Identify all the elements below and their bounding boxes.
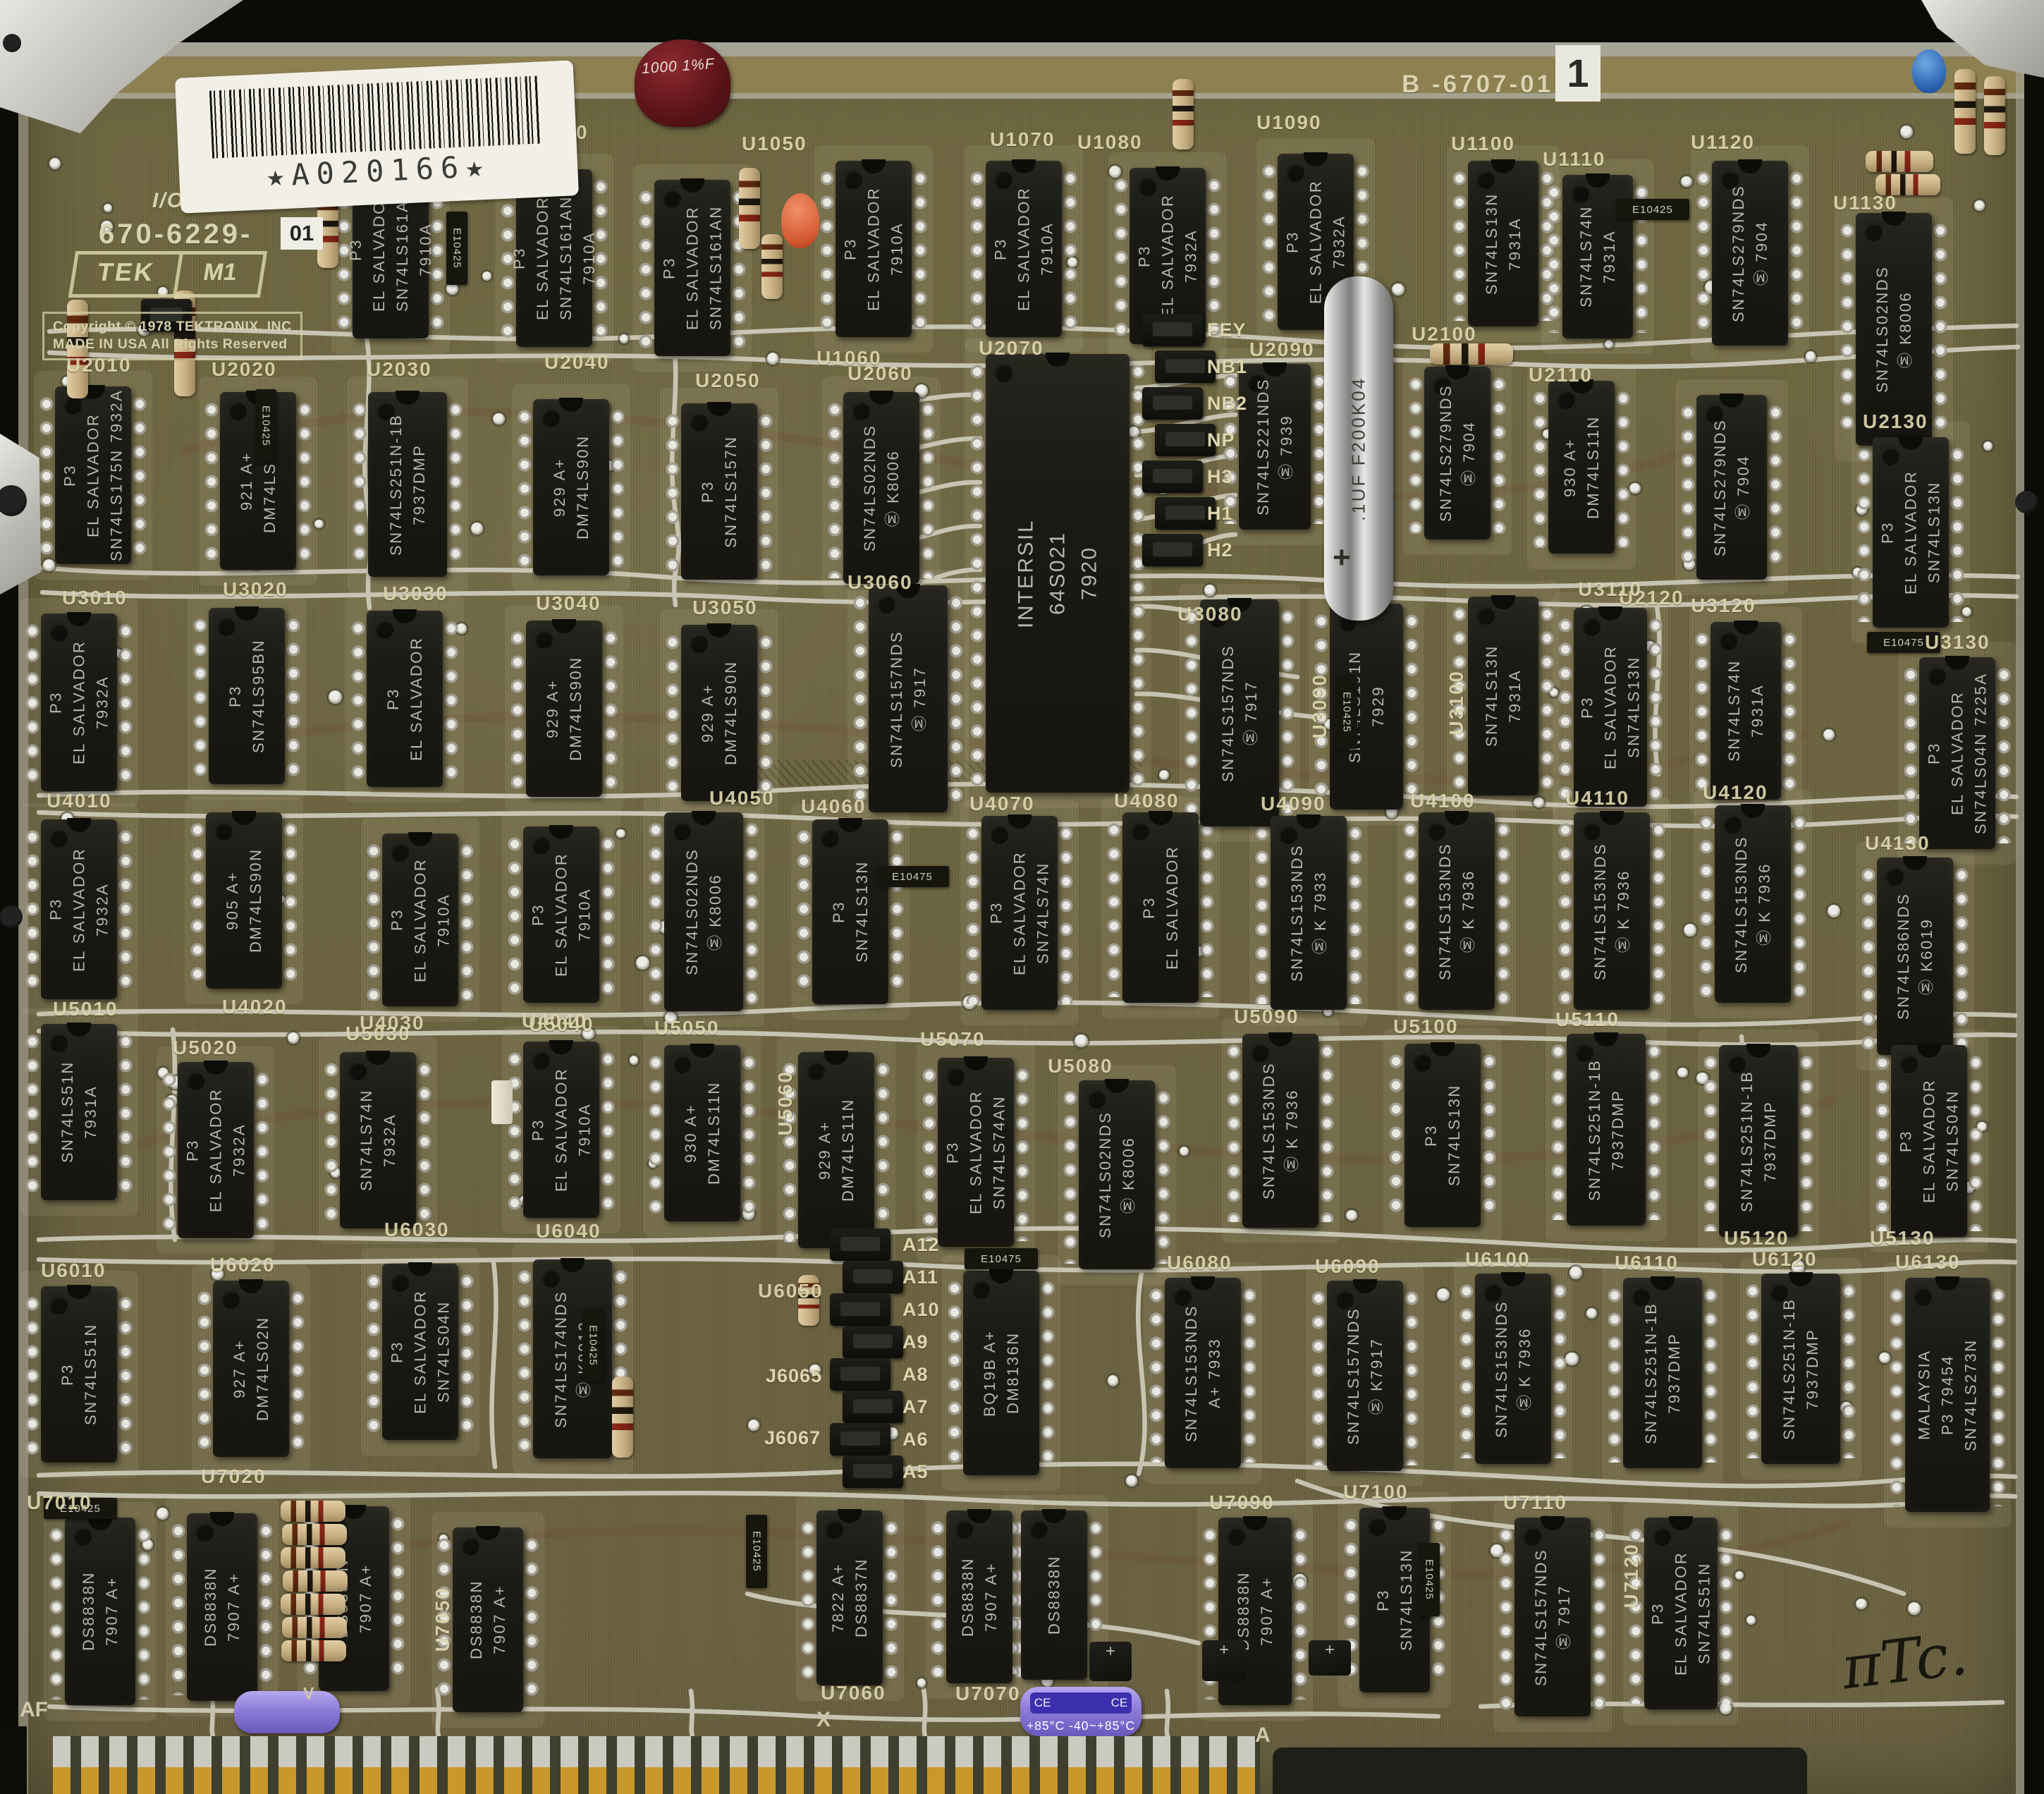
ic-designator: U7090 — [1209, 1491, 1275, 1514]
ic-part-number: SN74LS251N-1B 7937DMP — [1623, 1278, 1702, 1468]
black-square-capacitor: + — [1089, 1642, 1132, 1681]
ic-part-number: P3 EL SALVADOR SN74LS74N — [981, 816, 1058, 1010]
ic-chip: SN74LS74N 7931A — [1711, 622, 1781, 800]
resistor — [739, 168, 760, 249]
edge-fingers-tin — [53, 1736, 1260, 1767]
ic-pins-left — [25, 1292, 40, 1457]
ic-pins-right — [1799, 1051, 1814, 1231]
clip-hole — [3, 34, 21, 52]
ic-part-number: SN74LS86NDS Ⓜ K6019 — [1877, 858, 1953, 1055]
ic-chip: SN74LS153NDS Ⓜ K 7936 — [1715, 805, 1791, 1003]
ic-pins-left — [25, 619, 40, 786]
ic-pins-left — [39, 392, 54, 559]
ic-pins-right — [758, 630, 773, 795]
via-pad — [1681, 176, 1691, 187]
ic-pins-right — [758, 409, 773, 574]
tektronix-logo: TEK M1 — [68, 251, 267, 298]
ic-designator: U4100 — [1410, 790, 1476, 812]
ic-chip: SN74LS221NDS Ⓜ 7939 — [1239, 364, 1311, 530]
connector-designator: J6067 — [764, 1427, 821, 1449]
jumper-block — [1142, 460, 1203, 493]
ic-pins-right — [1933, 219, 1948, 440]
serial-number-label: ★A020166★ — [175, 60, 579, 213]
ic-pins-left — [1875, 1051, 1890, 1231]
jumper-label: NB1 — [1207, 356, 1247, 378]
ic-pins-right — [1015, 1063, 1030, 1241]
resistor — [1173, 79, 1194, 149]
ic-chip: P3 SN74LS13N — [812, 819, 888, 1004]
ic-pins-left — [965, 822, 981, 1004]
ic-designator: U1070 — [990, 128, 1055, 151]
ic-pins-right — [1280, 605, 1295, 821]
via-pad — [1075, 1035, 1087, 1047]
ic-part-number: 929 A+ DM74LS90N — [533, 399, 609, 575]
diode-component: E10425 — [746, 1515, 767, 1588]
ic-designator: U3120 — [1691, 594, 1756, 617]
ic-pins-left — [1861, 863, 1876, 1049]
ic-pins-left — [192, 614, 208, 779]
ic-pins-left — [1856, 443, 1872, 622]
ic-chip: 929 A+ DM74LS90N — [681, 625, 757, 801]
ic-pins-left — [819, 166, 835, 331]
ic-chip: SN74LS251N-1B 7937DMP — [1761, 1274, 1840, 1464]
ic-part-number: SN74LS279NDS Ⓜ 7904 — [1712, 161, 1788, 346]
ic-pins-left — [510, 626, 525, 791]
ic-designator: U7060 — [821, 1682, 886, 1704]
ic-designator: U5050 — [654, 1017, 720, 1039]
ic-pins-left — [1699, 811, 1714, 997]
ic-chip: 927 A+ DM74LS02N — [213, 1281, 289, 1457]
jumper-block — [843, 1261, 903, 1293]
ic-pins-left — [930, 1516, 945, 1678]
ic-chip: P3 EL SALVADOR 7910A — [836, 161, 912, 337]
ic-chip: SN74LS02NDS Ⓜ K8006 — [664, 812, 743, 1011]
ic-pins-right — [1063, 166, 1078, 331]
ic-designator: U5060 — [774, 1070, 797, 1136]
jumper-label: A9 — [902, 1331, 929, 1353]
ic-part-number: P3 EL SALVADOR SN74LS13N — [1574, 608, 1647, 807]
ic-part-number: P3 EL SALVADOR SN74LS04N 7225A — [1919, 657, 1995, 849]
diode-component: E10425 — [255, 389, 276, 463]
polarity-plus: + — [1333, 540, 1351, 575]
ic-chip: SN74LS02NDS Ⓜ K8006 — [1079, 1080, 1155, 1269]
ic-chip: P3 EL SALVADOR SN74LS13N — [1574, 608, 1647, 807]
ic-part-number: 905 A+ DM74LS90N — [206, 812, 282, 989]
ic-part-number: P3 SN74LS13N — [1405, 1044, 1481, 1227]
ic-pins-left — [1388, 1049, 1404, 1221]
edge-connector — [53, 1736, 1260, 1794]
ic-designator: U5080 — [1048, 1055, 1113, 1078]
ic-designator: U7010 — [27, 1491, 92, 1514]
ic-pins-right — [883, 1516, 899, 1680]
ic-chip: DS8838N 7907 A+ — [453, 1527, 523, 1712]
via-pad — [1392, 283, 1405, 296]
ic-designator: U3030 — [383, 582, 448, 605]
jumper-label: A12 — [902, 1234, 940, 1256]
ic-pins-right — [1206, 173, 1222, 338]
connector-designator: J6065 — [766, 1365, 822, 1387]
ic-pins-left — [969, 360, 985, 787]
ic-designator: U5110 — [1555, 1008, 1620, 1031]
page-number-tag: 1 — [1555, 45, 1601, 102]
via-pad — [1108, 1375, 1119, 1386]
ic-pins-right — [1058, 822, 1074, 1004]
ic-pins-right — [889, 825, 905, 999]
resistor — [1866, 151, 1933, 172]
ic-pins-left — [1694, 628, 1710, 794]
ic-part-number: P3 EL SALVADOR SN74LS161AN — [654, 180, 730, 356]
ic-chip: P3 SN74LS157N — [681, 403, 757, 580]
ic-part-number: P3 EL SALVADOR 7910A — [986, 161, 1062, 337]
ic-designator: U5010 — [53, 998, 118, 1020]
resistor — [1984, 76, 2005, 155]
ic-pins-left — [827, 398, 843, 578]
mounting-hole-right — [2015, 491, 2038, 513]
ic-pins-right — [1495, 818, 1511, 1004]
ic-part-number: P3 EL SALVADOR 7932A — [41, 819, 117, 999]
ic-designator: U3100 — [1445, 670, 1468, 736]
ic-part-number: SN74LS221NDS Ⓜ 7939 — [1239, 364, 1311, 530]
ic-pins-right — [1156, 1086, 1171, 1264]
ic-pins-right — [1242, 1283, 1257, 1463]
jumper-block — [1142, 534, 1203, 566]
ic-part-number: SN74LS157NDS Ⓜ 7917 — [1514, 1518, 1591, 1716]
ic-chip: SN74LS74N 7932A — [340, 1052, 416, 1228]
ic-chip: SN74LS251N-1B 7937DMP — [1623, 1278, 1702, 1468]
resistor — [1954, 69, 1976, 154]
ic-pins-left — [1745, 1279, 1761, 1458]
jumper-block — [830, 1423, 891, 1456]
ic-chip: P3 EL SALVADOR SN74LS04N — [1891, 1045, 1967, 1237]
ic-pins-right — [1792, 811, 1807, 997]
jumper-label: FEY — [1207, 319, 1247, 341]
resistor — [761, 234, 783, 299]
ic-chip: P3 EL SALVADOR 7910A — [382, 834, 458, 1006]
ic-pins-right — [1404, 609, 1419, 804]
ic-designator: U2050 — [695, 370, 761, 392]
ic-pins-left — [1840, 219, 1855, 440]
ic-pins-left — [1149, 1283, 1164, 1463]
ic-pins-right — [1552, 1279, 1567, 1458]
ic-designator: U4020 — [222, 996, 288, 1018]
ic-pins-right — [1968, 1051, 1983, 1231]
ic-part-number: P3 SN74LS95BN — [209, 608, 285, 784]
ic-pins-right — [448, 398, 463, 571]
via-pad — [1684, 924, 1696, 936]
purple-capacitor — [234, 1691, 340, 1733]
ic-pins-left — [1558, 614, 1573, 801]
ic-chip: DS8838N 7907 A+ — [946, 1511, 1012, 1683]
ic-chip: SN74LS13N 7931A — [1468, 161, 1538, 327]
via-pad — [482, 271, 491, 281]
tek-logo-text: TEK — [73, 255, 180, 294]
ic-designator: U4060 — [801, 795, 867, 818]
via-pad — [314, 520, 324, 529]
ic-designator: U7070 — [955, 1683, 1021, 1705]
ic-part-number: P3 EL SALVADOR SN74LS74AN — [938, 1058, 1014, 1247]
purple-labeled-capacitor: CE CE +85°C -40~+85°C — [1020, 1687, 1142, 1736]
ic-chip: P3 SN74LS51N — [41, 1286, 117, 1463]
ic-pins-right — [524, 1533, 539, 1707]
ic-pins-right — [1347, 822, 1363, 1004]
orange-drop-capacitor — [781, 193, 819, 248]
ic-chip: P3 EL SALVADOR 7910A — [523, 826, 599, 1003]
resistor — [612, 1377, 633, 1458]
edge-connector-slot — [1273, 1747, 1807, 1794]
ic-pins-right — [132, 392, 147, 559]
ic-designator: U4130 — [1865, 832, 1930, 855]
resistor — [1430, 343, 1513, 365]
resistor — [282, 1524, 347, 1545]
ic-chip: SN74LS157NDS Ⓜ 7917 — [869, 585, 948, 812]
ic-chip: SN74LS86NDS Ⓜ K6019 — [1877, 858, 1953, 1055]
ic-designator: U5040 — [529, 1013, 594, 1036]
via-pad — [493, 413, 504, 425]
ic-pins-left — [25, 1030, 40, 1195]
ic-pins-right — [1996, 663, 2012, 843]
ic-chip: SN74LS13N 7931A — [1468, 597, 1538, 795]
ic-part-number: BQ19B A+ DM8136N — [963, 1271, 1039, 1475]
silver-electrolytic-capacitor: .1UF F200K04 + — [1324, 276, 1393, 621]
ic-chip: 929 A+ DM74LS90N — [533, 399, 609, 575]
diode-component: E10425 — [1336, 676, 1357, 749]
ic-designator: U3110 — [1578, 578, 1642, 601]
ic-chip: SN74LS157NDS Ⓜ 7917 — [1514, 1518, 1591, 1716]
via-pad — [288, 1032, 299, 1044]
barcode — [209, 75, 542, 158]
ic-part-number: 929 A+ DM74LS90N — [681, 625, 757, 801]
ic-chip: 929 A+ DM74LS90N — [526, 621, 602, 797]
ic-pins-right — [258, 1519, 274, 1695]
resistor — [281, 1640, 346, 1661]
via-pad — [1204, 585, 1216, 596]
via-pad — [1569, 1267, 1582, 1279]
ic-pins-right — [875, 1058, 891, 1243]
jumper-label: A10 — [902, 1299, 940, 1321]
resistor — [281, 1501, 345, 1522]
ic-pins-right — [1199, 818, 1215, 997]
via-pad — [1346, 1210, 1357, 1221]
ic-designator: U2070 — [979, 337, 1044, 360]
ic-pins-right — [290, 1286, 305, 1451]
ic-pins-left — [204, 398, 219, 564]
jumper-label: A7 — [902, 1396, 929, 1418]
edge-fingers-gold — [53, 1767, 1260, 1794]
ic-pins-left — [507, 832, 522, 997]
jumper-label: A11 — [902, 1267, 938, 1288]
resistor — [281, 1547, 345, 1568]
ic-chip: SN74LS279NDS Ⓜ 7904 — [1424, 367, 1491, 539]
resistor — [281, 1594, 345, 1615]
ic-designator: U6130 — [1895, 1251, 1961, 1274]
edge-letter-v: V — [303, 1684, 314, 1703]
ic-chip: P3 EL SALVADOR SN74LS13N — [1873, 437, 1949, 628]
ic-pins-left — [1226, 1039, 1242, 1222]
ic-designator: U1050 — [742, 133, 807, 155]
ic-part-number: P3 EL SALVADOR 7932A — [178, 1062, 254, 1238]
ic-designator: U5130 — [1870, 1227, 1935, 1250]
ic-designator: U1110 — [1543, 148, 1605, 171]
ic-pins-right — [1789, 166, 1804, 340]
jumper-label: H1 — [1207, 503, 1233, 525]
ic-part-number: MALAYSIA P3 79454 SN74LS273N — [1905, 1278, 1990, 1512]
ic-chip: SN74LS153NDS Ⓜ K 7933 — [1271, 816, 1347, 1010]
ic-part-number: SN74LS02NDS Ⓜ K8006 — [843, 392, 919, 584]
ic-pins-left — [1696, 166, 1711, 340]
ic-part-number: DS8838N 7907 A+ — [187, 1513, 257, 1701]
ic-pins-right — [297, 398, 312, 564]
ic-chip: P3 EL SALVADOR 7932A — [41, 614, 117, 791]
ic-chip: 929 A+ DM74LS11N — [798, 1052, 874, 1248]
ic-pins-left — [1532, 386, 1548, 548]
cap-brand2: CE — [1111, 1696, 1128, 1710]
ic-pins-right — [1950, 443, 1965, 622]
jumper-block — [843, 1326, 903, 1358]
ic-pins-right — [948, 591, 964, 807]
ic-pins-left — [366, 1269, 381, 1434]
ic-part-number: P3 EL SALVADOR SN74LS175N 7932A — [55, 386, 131, 564]
cap-brand-band: CE CE — [1030, 1692, 1132, 1714]
ic-designator: U6090 — [1315, 1255, 1381, 1278]
ic-designator: U3020 — [223, 578, 288, 601]
diode-component: E10425 — [446, 212, 467, 285]
ic-pins-right — [1539, 602, 1555, 790]
jumper-block — [830, 1228, 891, 1261]
diode-component: E10425 — [1616, 199, 1689, 220]
ic-part-number: P3 EL SALVADOR SN74LS04N — [1891, 1045, 1967, 1237]
ic-pins-right — [1292, 1523, 1308, 1700]
ic-designator: U4090 — [1261, 793, 1326, 815]
red-cap-value: 1000 1%F — [641, 55, 726, 78]
ic-chip: P3 EL SALVADOR SN74LS161AN — [654, 180, 730, 356]
via-pad — [1534, 798, 1544, 808]
jumper-label: A8 — [902, 1364, 929, 1386]
ic-part-number: SN74LS157NDS Ⓜ K7917 — [1327, 1281, 1403, 1471]
ic-designator: U5120 — [1724, 1227, 1789, 1250]
ic-pins-right — [744, 818, 759, 1006]
ic-pins-right — [118, 1292, 133, 1457]
ic-part-number: 927 A+ DM74LS02N — [213, 1281, 289, 1457]
ic-pins-right — [1782, 628, 1797, 794]
jumper-block — [830, 1293, 891, 1326]
ic-designator: U5100 — [1393, 1015, 1459, 1038]
ic-part-number: SN74LS153NDS Ⓜ K 7936 — [1242, 1034, 1318, 1228]
ic-designator: U1090 — [1256, 111, 1322, 134]
part-number: 670-6229- — [99, 219, 252, 250]
ic-pins-left — [922, 1063, 937, 1241]
ic-part-number: SN74LS251N-1B 7937DMP — [1719, 1045, 1798, 1237]
corner-notch — [0, 1726, 27, 1794]
ic-pins-left — [350, 616, 366, 781]
ic-pins-left — [1459, 1279, 1474, 1458]
ic-designator: U6120 — [1752, 1248, 1818, 1271]
mounting-hole-left2 — [0, 905, 23, 928]
ic-part-number: SN74LS153NDS Ⓜ K 7936 — [1419, 812, 1495, 1010]
via-pad — [1720, 1702, 1732, 1714]
via-pad — [1565, 1353, 1578, 1365]
diode-component: E10425 — [582, 1309, 604, 1382]
red-dipped-capacitor: 1000 1%F — [635, 39, 730, 127]
ic-pins-left — [1498, 1523, 1514, 1711]
ic-pins-left — [517, 405, 532, 570]
part-revision-tag: 01 — [281, 217, 323, 250]
ic-pins-right — [286, 614, 301, 779]
edge-letter-a: A — [1255, 1723, 1271, 1747]
cap-temp-rating: +85°C -40~+85°C — [1020, 1719, 1142, 1733]
ic-pins-left — [852, 591, 868, 807]
ic-pins-left — [324, 1058, 339, 1223]
ic-designator: U6110 — [1615, 1252, 1679, 1274]
ic-part-number: INTERSIL 64S021 7920 — [986, 354, 1130, 793]
ic-pins-left — [1261, 159, 1277, 324]
ic-pins-right — [1990, 1283, 2006, 1506]
ic-designator: U3060 — [847, 571, 913, 594]
ic-designator: U2100 — [1412, 323, 1477, 346]
ic-designator: U3050 — [692, 597, 758, 619]
ic-pins-left — [1254, 822, 1270, 1004]
ic-designator: U6030 — [384, 1219, 450, 1241]
ic-pins-right — [600, 832, 616, 997]
ic-pins-left — [352, 398, 367, 571]
ic-pins-right — [118, 1030, 133, 1195]
ic-pins-right — [255, 1068, 270, 1233]
ic-pins-left — [1452, 166, 1467, 321]
ic-designator: U3090 — [1309, 673, 1331, 739]
via-pad — [1828, 905, 1840, 917]
ic-chip: P3 EL SALVADOR SN74LS51N — [1644, 1518, 1718, 1709]
ic-chip: 930 A+ DM74LS11N — [1548, 381, 1615, 554]
ic-part-number: P3 EL SALVADOR SN74LS13N — [1873, 437, 1949, 628]
via-pad — [767, 353, 779, 365]
ic-pins-left — [1408, 372, 1424, 534]
jumper-block — [830, 1358, 891, 1391]
ic-pins-left — [648, 818, 663, 1006]
ic-part-number: SN74LS251N-1B 7937DMP — [1761, 1274, 1840, 1464]
ic-pins-left — [1063, 1086, 1078, 1264]
diode-component: E10475 — [876, 866, 949, 887]
ic-designator: U2030 — [367, 358, 432, 381]
jumper-block — [843, 1391, 903, 1423]
ic-chip: SN74LS251N-1B 7937DMP — [1719, 1045, 1798, 1237]
ic-designator: U2040 — [544, 351, 610, 374]
ic-part-number: SN74LS13N 7931A — [1468, 597, 1538, 795]
ic-chip: 7822 A+ DS8837N — [816, 1511, 883, 1685]
jumper-label: A5 — [902, 1461, 929, 1483]
ic-pins-right — [1481, 1049, 1497, 1221]
ic-pins-left — [1889, 1283, 1904, 1506]
ic-pins-left — [507, 1047, 522, 1212]
ic-designator: U6040 — [536, 1220, 601, 1243]
ic-chip: P3 EL SALVADOR SN74LS175N 7932A — [55, 386, 131, 564]
ic-part-number: P3 EL SALVADOR 7910A — [523, 1042, 599, 1218]
ic-designator: U2060 — [847, 362, 913, 385]
ic-designator: U7120 — [1620, 1543, 1643, 1609]
ic-designator: U1130 — [1833, 192, 1897, 214]
ic-pins-left — [197, 1286, 212, 1451]
ic-pins-right — [1841, 1279, 1856, 1458]
ic-part-number: SN74LS279NDS Ⓜ 7904 — [1424, 367, 1491, 539]
ic-part-number: 929 A+ DM74LS11N — [798, 1052, 874, 1248]
ic-chip: SN74LS153NDS Ⓜ K 7936 — [1419, 812, 1495, 1010]
ic-designator: U7110 — [1503, 1491, 1567, 1514]
assembly-number: B -6707-01 — [1402, 71, 1553, 99]
ic-pins-right — [136, 1523, 152, 1700]
ic-chip: P3 EL SALVADOR SN74LS04N 7225A — [1919, 657, 1995, 849]
via-pad — [1806, 351, 1816, 361]
ic-designator: U3130 — [1925, 631, 1990, 654]
resistor — [283, 1570, 348, 1592]
ic-pins-right — [1130, 360, 1146, 787]
